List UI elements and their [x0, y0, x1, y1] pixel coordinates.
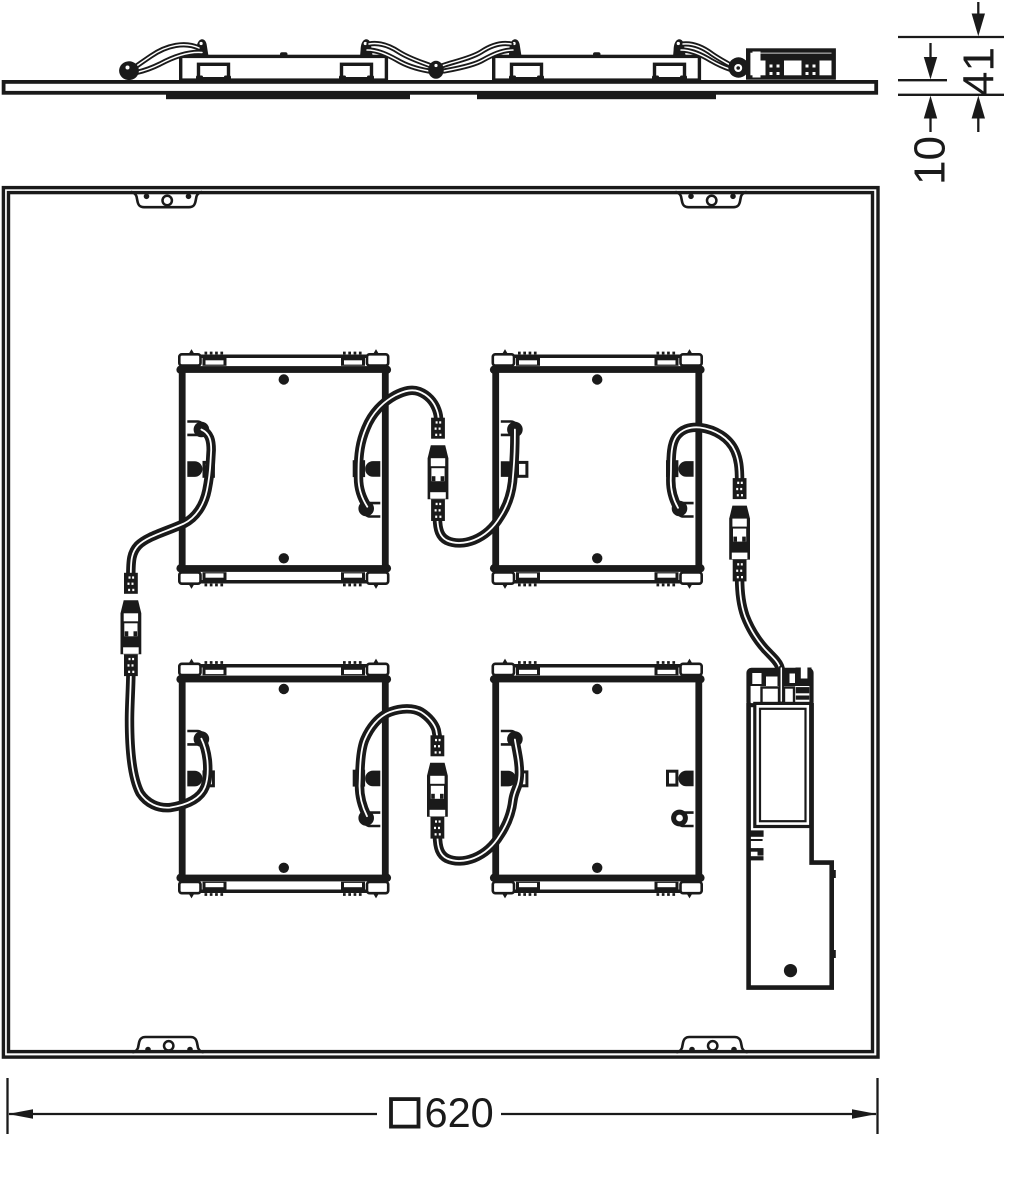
- svg-text:620: 620: [425, 1089, 494, 1136]
- svg-text:41: 41: [955, 47, 1004, 96]
- svg-text:10: 10: [906, 136, 955, 185]
